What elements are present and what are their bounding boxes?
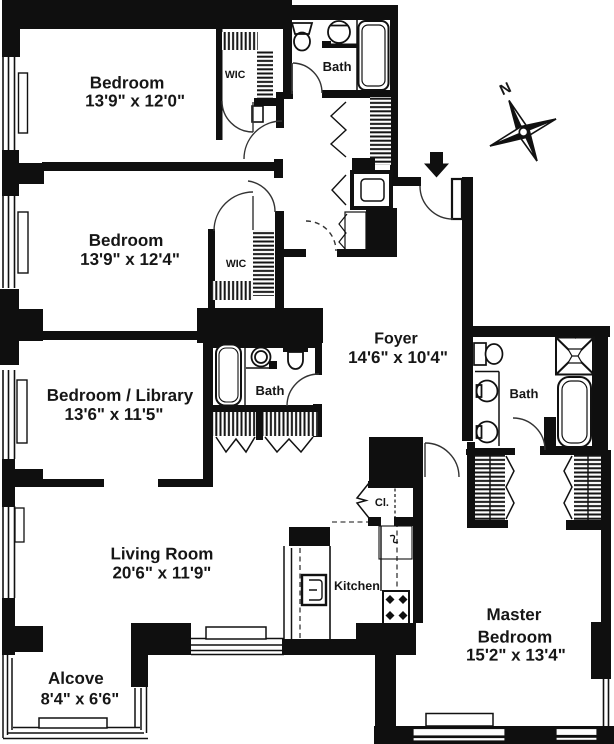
svg-text:Bath: Bath — [256, 383, 285, 398]
svg-text:Bath: Bath — [510, 386, 539, 401]
svg-text:13'9" x 12'4": 13'9" x 12'4" — [80, 250, 180, 269]
svg-text:Living Room: Living Room — [110, 544, 213, 563]
svg-text:15'2" x 13'4": 15'2" x 13'4" — [466, 646, 566, 665]
svg-text:20'6" x 11'9": 20'6" x 11'9" — [112, 563, 211, 582]
svg-text:Bedroom: Bedroom — [89, 231, 164, 250]
svg-text:14'6" x 10'4": 14'6" x 10'4" — [348, 348, 448, 367]
svg-text:Bedroom: Bedroom — [90, 73, 165, 92]
svg-text:Bath: Bath — [323, 59, 352, 74]
svg-text:Cl.: Cl. — [375, 497, 389, 509]
svg-text:Bedroom: Bedroom — [478, 628, 553, 647]
svg-text:Master: Master — [487, 605, 542, 624]
svg-text:8'4" x 6'6": 8'4" x 6'6" — [41, 690, 120, 708]
svg-text:Kitchen: Kitchen — [334, 579, 380, 593]
svg-text:Alcove: Alcove — [48, 669, 104, 688]
svg-text:WIC: WIC — [225, 69, 246, 81]
svg-text:WIC: WIC — [226, 258, 247, 270]
svg-text:13'9" x 12'0": 13'9" x 12'0" — [85, 91, 185, 110]
svg-text:Bedroom / Library: Bedroom / Library — [47, 386, 194, 405]
svg-text:13'6" x 11'5": 13'6" x 11'5" — [65, 405, 164, 424]
svg-text:Foyer: Foyer — [374, 331, 418, 348]
